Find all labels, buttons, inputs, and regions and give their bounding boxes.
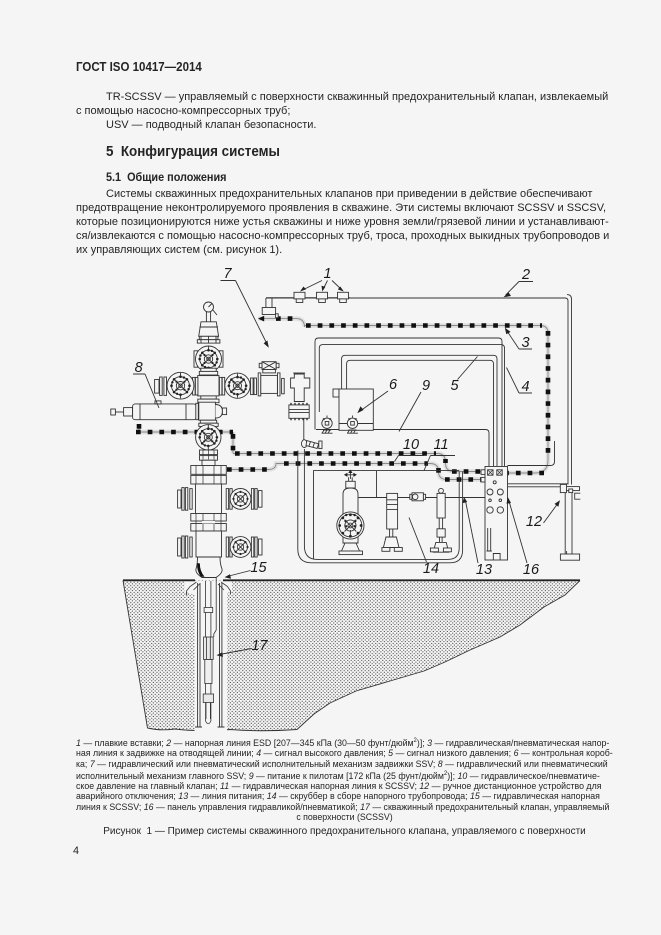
svg-text:11: 11 <box>433 437 448 453</box>
svg-text:7: 7 <box>223 266 232 282</box>
svg-text:15: 15 <box>250 560 267 576</box>
svg-text:17: 17 <box>251 638 268 654</box>
svg-text:9: 9 <box>422 378 430 394</box>
svg-text:13: 13 <box>476 562 492 578</box>
svg-text:6: 6 <box>389 377 398 393</box>
svg-text:16: 16 <box>523 562 540 578</box>
svg-text:5: 5 <box>450 378 459 394</box>
svg-text:14: 14 <box>423 561 439 577</box>
svg-text:2: 2 <box>521 267 530 283</box>
svg-text:1: 1 <box>323 266 331 282</box>
svg-text:12: 12 <box>526 514 542 530</box>
svg-text:10: 10 <box>403 437 419 453</box>
